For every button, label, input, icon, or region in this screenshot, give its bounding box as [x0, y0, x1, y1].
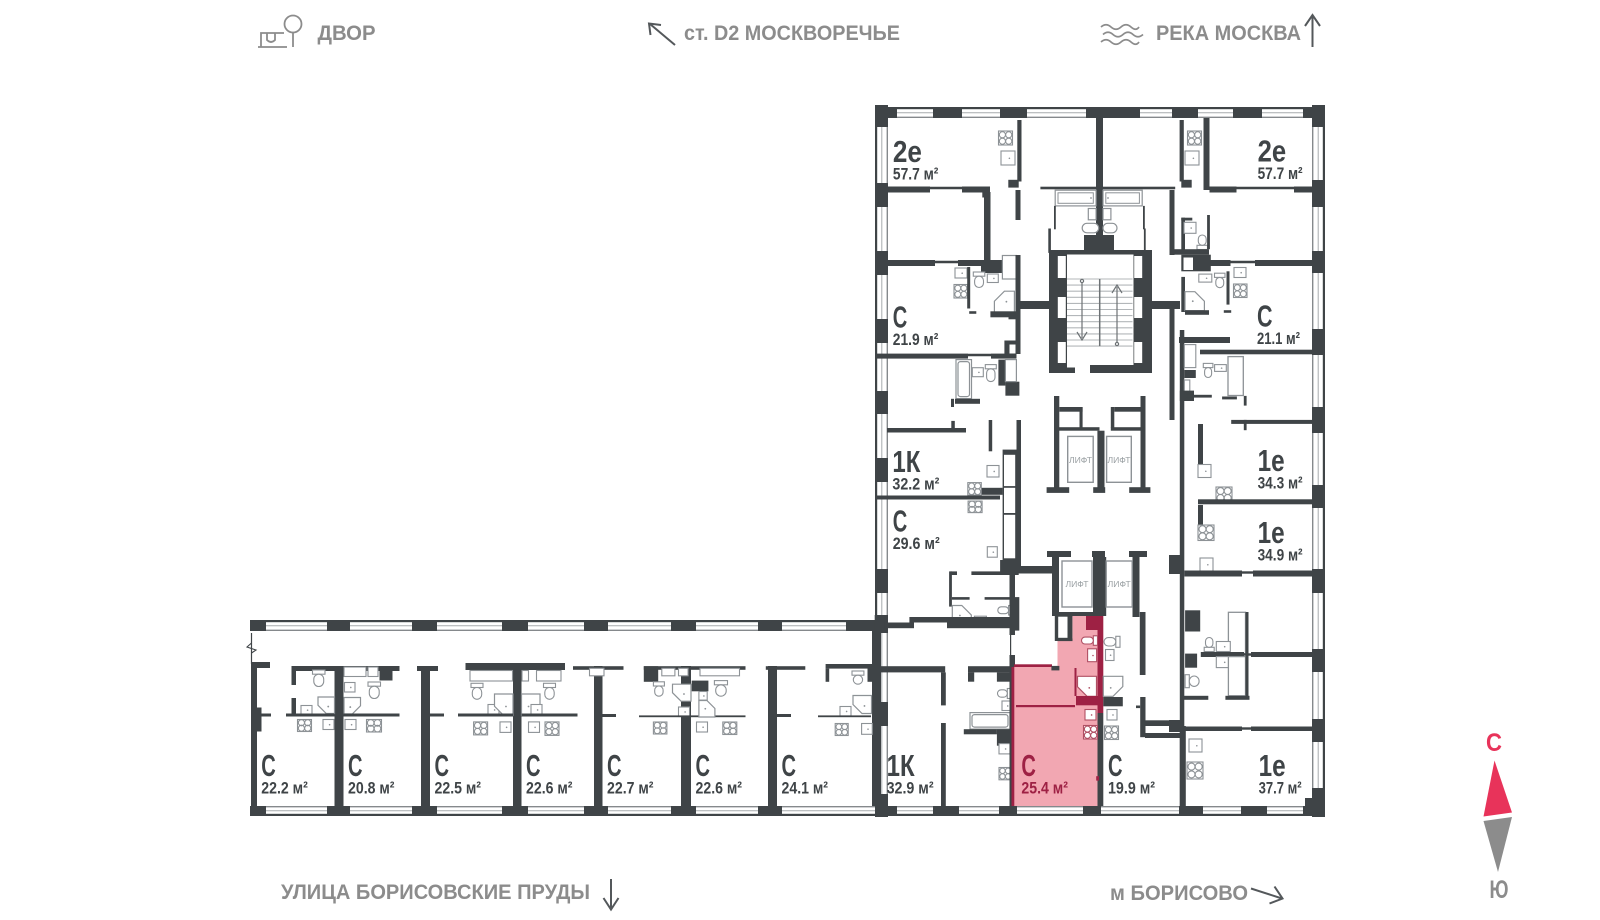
svg-text:29.6 м²: 29.6 м²: [893, 534, 940, 553]
svg-text:УЛИЦА БОРИСОВСКИЕ ПРУДЫ: УЛИЦА БОРИСОВСКИЕ ПРУДЫ: [281, 880, 590, 904]
svg-text:м БОРИСОВО: м БОРИСОВО: [1110, 881, 1248, 905]
svg-text:32.9 м²: 32.9 м²: [887, 779, 934, 798]
svg-text:21.9 м²: 21.9 м²: [893, 330, 939, 349]
svg-text:21.1 м²: 21.1 м²: [1257, 329, 1300, 348]
svg-text:34.9 м²: 34.9 м²: [1258, 546, 1303, 565]
svg-text:22.6 м²: 22.6 м²: [526, 779, 573, 798]
svg-text:Ю: Ю: [1490, 876, 1509, 904]
svg-text:19.9 м²: 19.9 м²: [1108, 779, 1155, 798]
svg-text:ЛИФТ: ЛИФТ: [1065, 579, 1089, 589]
svg-text:20.8 м²: 20.8 м²: [348, 779, 395, 798]
svg-text:57.7 м²: 57.7 м²: [1258, 164, 1303, 183]
svg-text:24.1 м²: 24.1 м²: [782, 779, 829, 798]
svg-text:22.7 м²: 22.7 м²: [607, 779, 654, 798]
svg-text:ЛИФТ: ЛИФТ: [1108, 579, 1132, 589]
svg-text:ДВОР: ДВОР: [318, 21, 376, 45]
svg-text:22.6 м²: 22.6 м²: [696, 779, 743, 798]
svg-text:57.7 м²: 57.7 м²: [893, 165, 939, 184]
svg-text:22.2 м²: 22.2 м²: [261, 779, 308, 798]
svg-text:ЛИФТ: ЛИФТ: [1107, 455, 1131, 465]
svg-text:25.4 м²: 25.4 м²: [1021, 779, 1068, 798]
svg-text:37.7 м²: 37.7 м²: [1259, 779, 1302, 798]
svg-text:32.2 м²: 32.2 м²: [892, 475, 939, 494]
svg-text:ЛИФТ: ЛИФТ: [1069, 455, 1093, 465]
svg-text:РЕКА МОСКВА: РЕКА МОСКВА: [1156, 21, 1301, 45]
svg-text:22.5 м²: 22.5 м²: [435, 779, 482, 798]
svg-text:34.3 м²: 34.3 м²: [1258, 474, 1303, 493]
svg-text:С: С: [1486, 729, 1502, 757]
svg-text:ст. D2 МОСКВОРЕЧЬЕ: ст. D2 МОСКВОРЕЧЬЕ: [684, 21, 900, 45]
